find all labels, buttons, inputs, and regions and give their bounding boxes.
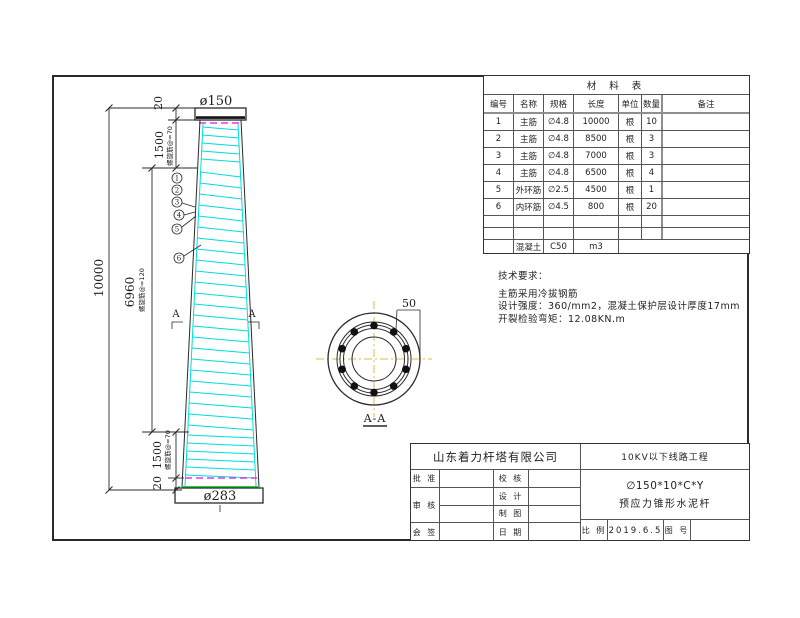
- date-field-value: [529, 523, 581, 541]
- cell: 主筋: [514, 148, 544, 164]
- tech-notes: 技术要求： 主筋采用冷拔钢筋 设计强度：360/mm2，混凝土保护层设计厚度17…: [498, 271, 740, 326]
- dim-mid-note: 螺旋筋@=120: [137, 268, 146, 312]
- cell: 内环筋: [514, 199, 544, 215]
- concrete-grade: C50: [544, 240, 574, 253]
- cell: 7000: [574, 148, 619, 164]
- callout-1: 1: [175, 175, 179, 183]
- cell: 4500: [574, 182, 619, 198]
- title-block: 山东着力杆塔有限公司 10KV以下线路工程 批 准 校 核 审 核 设 计 制 …: [410, 443, 750, 541]
- spiral-reinforcement-lines: [186, 127, 256, 478]
- table-row-empty: [484, 228, 749, 240]
- dim-bottom-segment: 1500: [151, 441, 164, 469]
- table-row: 1 主筋 ∅4.8 10000 根 10: [484, 114, 749, 131]
- cell: 4: [484, 165, 514, 181]
- col-header: 单位: [619, 95, 642, 112]
- pole-right-edge: [241, 120, 259, 487]
- col-header: 名称: [514, 95, 544, 112]
- callout-2: 2: [175, 187, 179, 195]
- cell: 根: [619, 199, 642, 215]
- section-a-a-view: 50 A-A: [316, 297, 432, 426]
- dim-top-note: 螺旋筋@=70: [165, 126, 174, 166]
- tech-note-line: 设计强度：360/mm2，混凝土保护层设计厚度17mm: [498, 301, 740, 314]
- materials-table-title: 材 料 表: [484, 76, 749, 94]
- tech-notes-title: 技术要求：: [498, 271, 740, 284]
- dim-total: 10000: [92, 259, 106, 297]
- cell: 5: [484, 182, 514, 198]
- callout-3: 3: [175, 199, 179, 207]
- label-check: 校 核: [494, 470, 529, 488]
- cell: 外环筋: [514, 182, 544, 198]
- dim-bottom-note: 螺旋筋@=70: [163, 430, 172, 470]
- concrete-label: 混凝土: [514, 240, 544, 253]
- table-row-empty: [484, 216, 749, 228]
- callout-6: 6: [177, 255, 182, 263]
- label-date: 日 期: [494, 523, 529, 541]
- cell: [663, 131, 749, 147]
- col-header: 编号: [484, 95, 514, 112]
- cell: [663, 199, 749, 215]
- drawing-no-value: [691, 520, 749, 541]
- review-value: [440, 488, 494, 506]
- cell: ∅4.8: [544, 165, 574, 181]
- cell: ∅4.8: [544, 114, 574, 130]
- cell: 根: [619, 131, 642, 147]
- dim-top-cap: 20: [152, 96, 165, 110]
- col-header: 规格: [544, 95, 574, 112]
- label-scale: 比 例: [581, 520, 608, 541]
- signature-grid: 批 准 校 核 审 核 设 计 制 图 会 签 日 期: [411, 470, 581, 541]
- draft-value: [529, 506, 581, 524]
- callout-5: 5: [175, 226, 179, 234]
- cell: 800: [574, 199, 619, 215]
- col-header: 长度: [574, 95, 619, 112]
- cell: ∅4.8: [544, 131, 574, 147]
- label-review: 审 核: [411, 488, 440, 524]
- cell: 根: [619, 165, 642, 181]
- pole-elevation-view: ø150 ø283: [175, 94, 263, 512]
- label-countersign: 会 签: [411, 523, 440, 541]
- project-name: 10KV以下线路工程: [581, 444, 749, 469]
- col-header: 备注: [663, 95, 749, 112]
- materials-header-row: 编号 名称 规格 长度 单位 数量 备注: [484, 95, 749, 114]
- dim-mid: 6960: [123, 277, 137, 308]
- cell: 1: [642, 182, 663, 198]
- table-row: 5 外环筋 ∅2.5 4500 根 1: [484, 182, 749, 199]
- cell: 6: [484, 199, 514, 215]
- cell: ∅2.5: [544, 182, 574, 198]
- cell: [663, 182, 749, 198]
- review-value-2: [440, 506, 494, 524]
- materials-table: 材 料 表 编号 名称 规格 长度 单位 数量 备注 1 主筋 ∅4.8 100…: [483, 75, 750, 254]
- cell: ∅4.5: [544, 199, 574, 215]
- col-header: 数量: [642, 95, 663, 112]
- label-design: 设 计: [494, 488, 529, 506]
- table-row: 6 内环筋 ∅4.5 800 根 20: [484, 199, 749, 216]
- section-label: A-A: [363, 412, 387, 425]
- cell: 根: [619, 148, 642, 164]
- cell: 3: [642, 131, 663, 147]
- dim-wall-thickness: 50: [402, 297, 416, 310]
- product-name: 预应力锥形水泥杆: [619, 495, 711, 510]
- cell: 10000: [574, 114, 619, 130]
- concrete-unit: m3: [574, 240, 619, 253]
- cell: 6500: [574, 165, 619, 181]
- dim-top-segment: 1500: [153, 131, 166, 159]
- rebar-right-edge: [238, 124, 256, 486]
- cell: 1: [484, 114, 514, 130]
- cell: [663, 148, 749, 164]
- cell: 3: [484, 148, 514, 164]
- table-row: 4 主筋 ∅4.8 6500 根 4: [484, 165, 749, 182]
- date-value: 2019.6.5: [608, 520, 664, 541]
- cell: [663, 165, 749, 181]
- section-marker-right: A: [247, 309, 256, 320]
- table-row: 2 主筋 ∅4.8 8500 根 3: [484, 131, 749, 148]
- cell: 主筋: [514, 114, 544, 130]
- approve-value: [440, 470, 494, 488]
- cell: [663, 114, 749, 130]
- cell: 4: [642, 165, 663, 181]
- check-value: [529, 470, 581, 488]
- drawing-sheet: ø150 ø283 20 1500 螺旋筋@=70 10000 6960 螺旋筋…: [0, 0, 800, 618]
- cell: 10: [642, 114, 663, 130]
- cell: 主筋: [514, 165, 544, 181]
- callout-4: 4: [177, 212, 182, 220]
- dim-bottom-cap: 20: [151, 476, 164, 490]
- cell: 2: [484, 131, 514, 147]
- bottom-diameter-label: ø283: [204, 489, 237, 504]
- label-draft: 制 图: [494, 506, 529, 524]
- cell: 主筋: [514, 131, 544, 147]
- section-marker-left: A: [171, 309, 180, 320]
- design-value: [529, 488, 581, 506]
- cell: ∅4.8: [544, 148, 574, 164]
- label-drawing-no: 图 号: [664, 520, 691, 541]
- cell: 3: [642, 148, 663, 164]
- cell: 根: [619, 114, 642, 130]
- dimension-lines: 20 1500 螺旋筋@=70 10000 6960 螺旋筋@=120 1500…: [92, 96, 200, 494]
- section-cut-markers: A A: [171, 309, 259, 329]
- tech-note-line: 主筋采用冷拔钢筋: [498, 289, 740, 302]
- cell: 根: [619, 182, 642, 198]
- table-row: 3 主筋 ∅4.8 7000 根 3: [484, 148, 749, 165]
- product-code: ∅150*10*C*Y: [626, 480, 704, 492]
- label-approve: 批 准: [411, 470, 440, 488]
- cell: 20: [642, 199, 663, 215]
- company-name: 山东着力杆塔有限公司: [411, 444, 581, 469]
- table-row-concrete: 混凝土 C50 m3: [484, 240, 749, 253]
- top-diameter-label: ø150: [200, 94, 233, 109]
- tech-note-line: 开裂检验弯矩：12.08KN.m: [498, 314, 740, 327]
- cell: 8500: [574, 131, 619, 147]
- countersign-value: [440, 523, 494, 541]
